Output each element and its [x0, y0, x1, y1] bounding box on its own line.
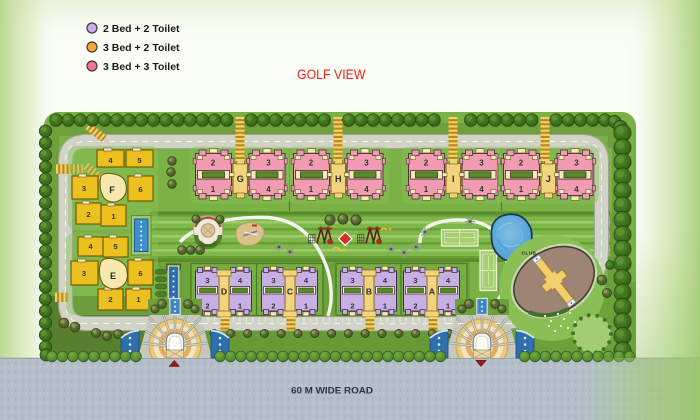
- svg-text:2: 2: [271, 302, 275, 311]
- svg-text:4: 4: [479, 185, 484, 194]
- svg-text:2: 2: [108, 295, 112, 304]
- svg-text:1: 1: [424, 185, 429, 194]
- svg-text:J: J: [546, 174, 551, 184]
- svg-text:3: 3: [574, 158, 579, 167]
- svg-text:G: G: [237, 174, 244, 184]
- svg-text:2: 2: [413, 302, 417, 311]
- svg-text:3: 3: [266, 158, 271, 167]
- svg-text:2: 2: [211, 158, 216, 167]
- svg-text:B: B: [366, 287, 372, 297]
- svg-text:1: 1: [211, 185, 216, 194]
- svg-text:3: 3: [364, 158, 369, 167]
- svg-text:1: 1: [309, 185, 314, 194]
- svg-text:3: 3: [479, 158, 484, 167]
- svg-text:3 Bed + 3 Toilet: 3 Bed + 3 Toilet: [103, 61, 180, 73]
- svg-text:3: 3: [205, 276, 209, 285]
- svg-text:3 Bed + 2 Toilet: 3 Bed + 2 Toilet: [103, 42, 180, 54]
- svg-text:I: I: [452, 174, 455, 184]
- svg-text:3: 3: [82, 184, 86, 193]
- svg-text:2: 2: [205, 302, 209, 311]
- svg-text:2: 2: [519, 158, 524, 167]
- svg-text:H: H: [335, 174, 342, 184]
- svg-text:F: F: [109, 185, 115, 195]
- svg-text:6: 6: [138, 185, 142, 194]
- svg-text:CLUB: CLUB: [522, 251, 537, 256]
- svg-text:4: 4: [266, 185, 271, 194]
- svg-text:2: 2: [424, 158, 429, 167]
- svg-text:2 Bed + 2 Toilet: 2 Bed + 2 Toilet: [103, 23, 180, 35]
- svg-text:1: 1: [519, 185, 524, 194]
- svg-text:3: 3: [413, 276, 417, 285]
- svg-text:C: C: [287, 287, 293, 297]
- svg-text:3: 3: [350, 276, 354, 285]
- svg-text:2: 2: [350, 302, 354, 311]
- svg-text:2: 2: [86, 210, 90, 219]
- svg-text:E: E: [110, 271, 116, 281]
- svg-text:GOLF VIEW: GOLF VIEW: [297, 66, 366, 82]
- svg-text:3: 3: [82, 269, 86, 278]
- svg-text:6: 6: [138, 269, 142, 278]
- svg-text:2: 2: [309, 158, 314, 167]
- svg-text:4: 4: [364, 185, 369, 194]
- svg-text:4: 4: [574, 185, 579, 194]
- svg-text:A: A: [429, 287, 435, 297]
- svg-text:D: D: [221, 287, 227, 297]
- svg-text:3: 3: [271, 276, 275, 285]
- svg-text:60 M WIDE ROAD: 60 M WIDE ROAD: [291, 385, 373, 396]
